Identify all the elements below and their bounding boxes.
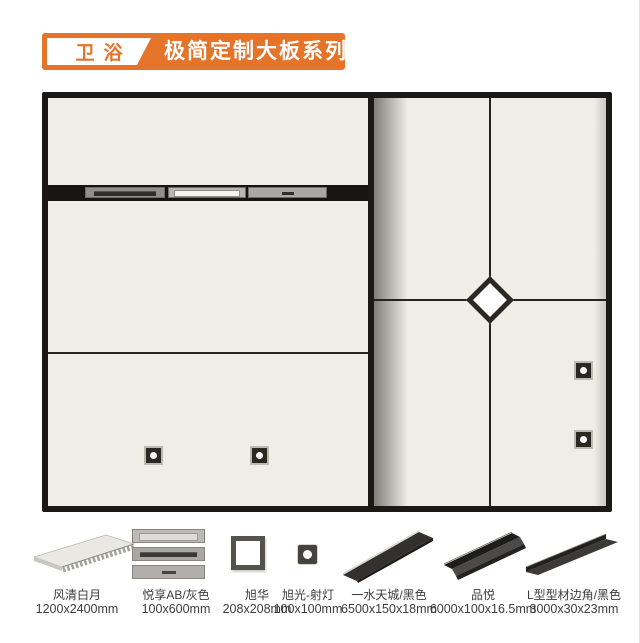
big-panel-thumbnail (26, 530, 141, 582)
product-name: L型型材边角/黑色 (509, 588, 639, 602)
module-set-thumbnail (132, 529, 205, 581)
appliance-strip (48, 185, 368, 201)
divider-shadow (374, 98, 408, 506)
light-module-icon (168, 187, 246, 198)
product-name: 风清白月 (17, 588, 137, 602)
series-title: 极简定制大板系列 (164, 33, 348, 70)
product-size: 1200x2400mm (17, 602, 137, 616)
product-label: L型型材边角/黑色 3000x30x23mm (509, 588, 639, 616)
right-edge-shadow (594, 98, 606, 506)
vent-grille (282, 192, 294, 195)
l-angle-thumbnail (524, 531, 624, 581)
spotlight-icon (576, 363, 591, 378)
heater-module-thumb (132, 547, 205, 561)
heater-vent-slot (94, 191, 156, 196)
vent-module-thumb (132, 565, 205, 579)
heater-module-icon (85, 187, 165, 198)
vent-module-icon (248, 187, 327, 198)
spotlight-icon (576, 432, 591, 447)
spotlight-icon (252, 448, 267, 463)
light-module-thumb (132, 529, 205, 543)
category-badge: 卫浴 (47, 38, 151, 65)
left-panel-seam (48, 352, 368, 354)
left-ceiling-panel (48, 98, 368, 506)
light-lens (174, 190, 240, 197)
square-frame-thumbnail (231, 536, 265, 570)
product-size: 3000x30x23mm (509, 602, 639, 616)
ceiling-layout-diagram (42, 92, 612, 512)
spotlight-thumbnail (298, 545, 317, 564)
channel-profile-thumbnail (436, 527, 531, 584)
category-badge-label: 卫浴 (66, 38, 131, 65)
promo-page: 卫浴 极简定制大板系列 (0, 0, 640, 643)
product-label: 风清白月 1200x2400mm (17, 588, 137, 616)
spotlight-icon (146, 448, 161, 463)
series-banner: 卫浴 极简定制大板系列 (42, 33, 345, 70)
edge-strip-thumbnail (341, 527, 436, 584)
